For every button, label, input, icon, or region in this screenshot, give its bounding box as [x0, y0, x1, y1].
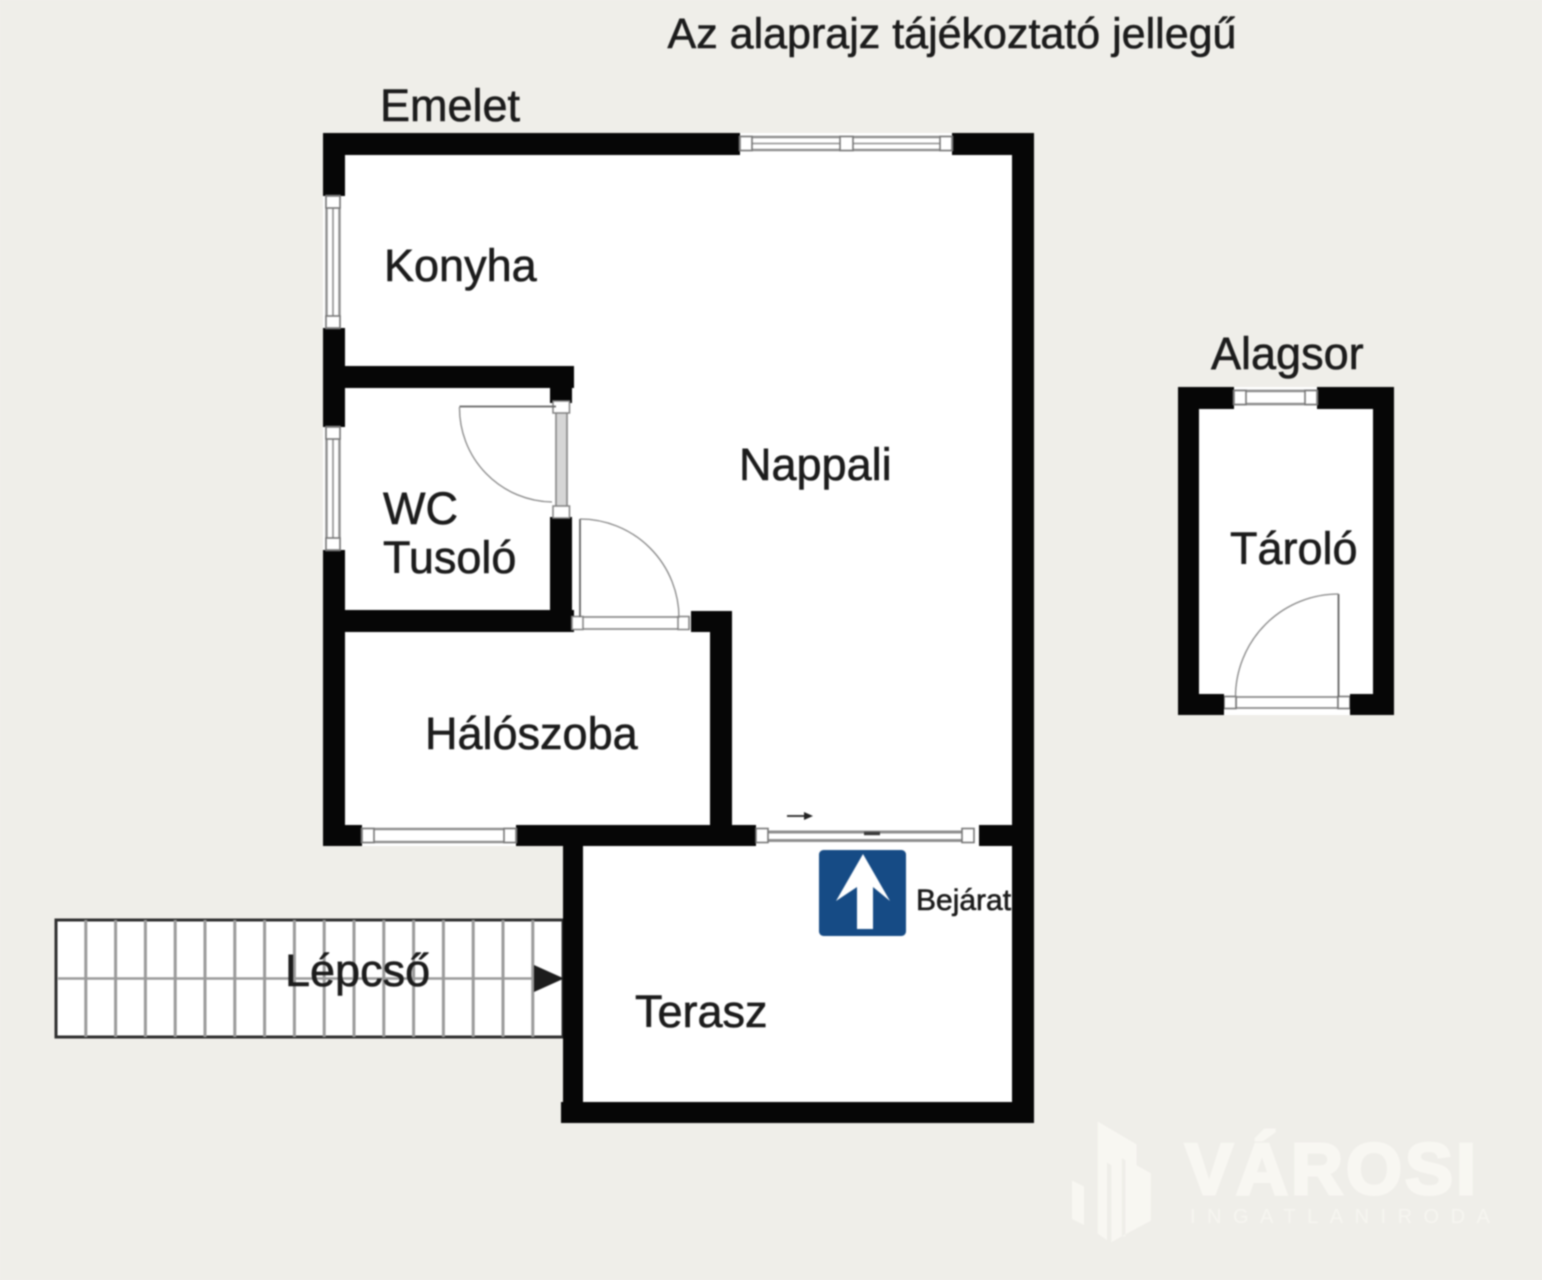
svg-text:Alagsor: Alagsor: [1211, 328, 1364, 379]
svg-text:INGATLANIRODA: INGATLANIRODA: [1190, 1206, 1501, 1228]
svg-text:VÁROSI: VÁROSI: [1185, 1130, 1479, 1210]
svg-text:Lépcső: Lépcső: [285, 945, 430, 996]
svg-text:Tároló: Tároló: [1230, 523, 1358, 574]
svg-text:Terasz: Terasz: [635, 986, 768, 1037]
svg-text:WC: WC: [383, 483, 458, 534]
svg-text:Emelet: Emelet: [380, 80, 521, 131]
svg-text:Hálószoba: Hálószoba: [425, 708, 639, 759]
svg-text:Bejárat: Bejárat: [916, 884, 1012, 917]
svg-text:Konyha: Konyha: [384, 240, 538, 291]
svg-text:Tusoló: Tusoló: [383, 532, 516, 583]
svg-text:Nappali: Nappali: [739, 439, 892, 490]
svg-text:Az alaprajz tájékoztató jelleg: Az alaprajz tájékoztató jellegű: [668, 10, 1237, 58]
